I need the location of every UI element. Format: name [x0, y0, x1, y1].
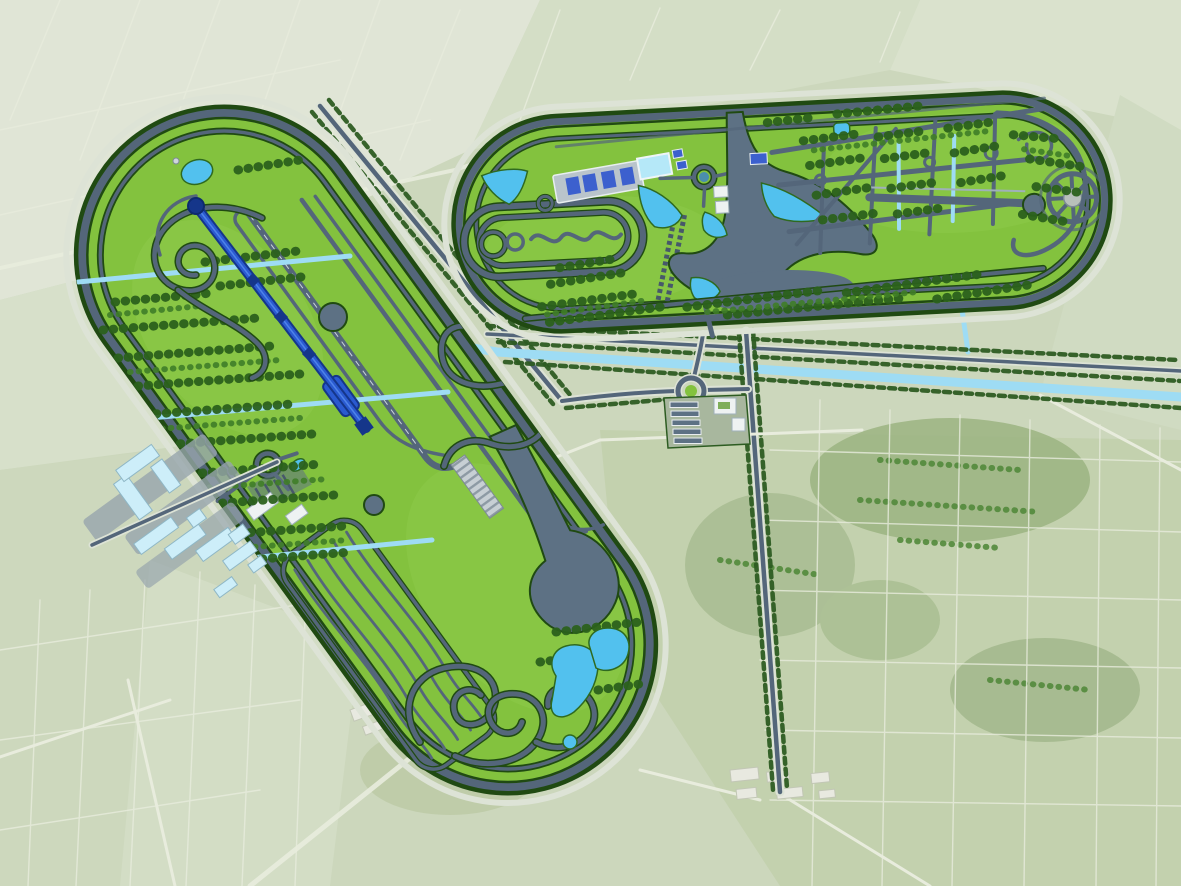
gate-roundabout: [685, 385, 697, 397]
braking-turnaround: [188, 198, 204, 214]
water-basin-pool: [637, 153, 672, 179]
mast-icon: [173, 158, 179, 164]
skid-circle: [319, 303, 347, 331]
aerial-masterplan-map: [0, 0, 1181, 886]
map-canvas: [0, 0, 1181, 886]
